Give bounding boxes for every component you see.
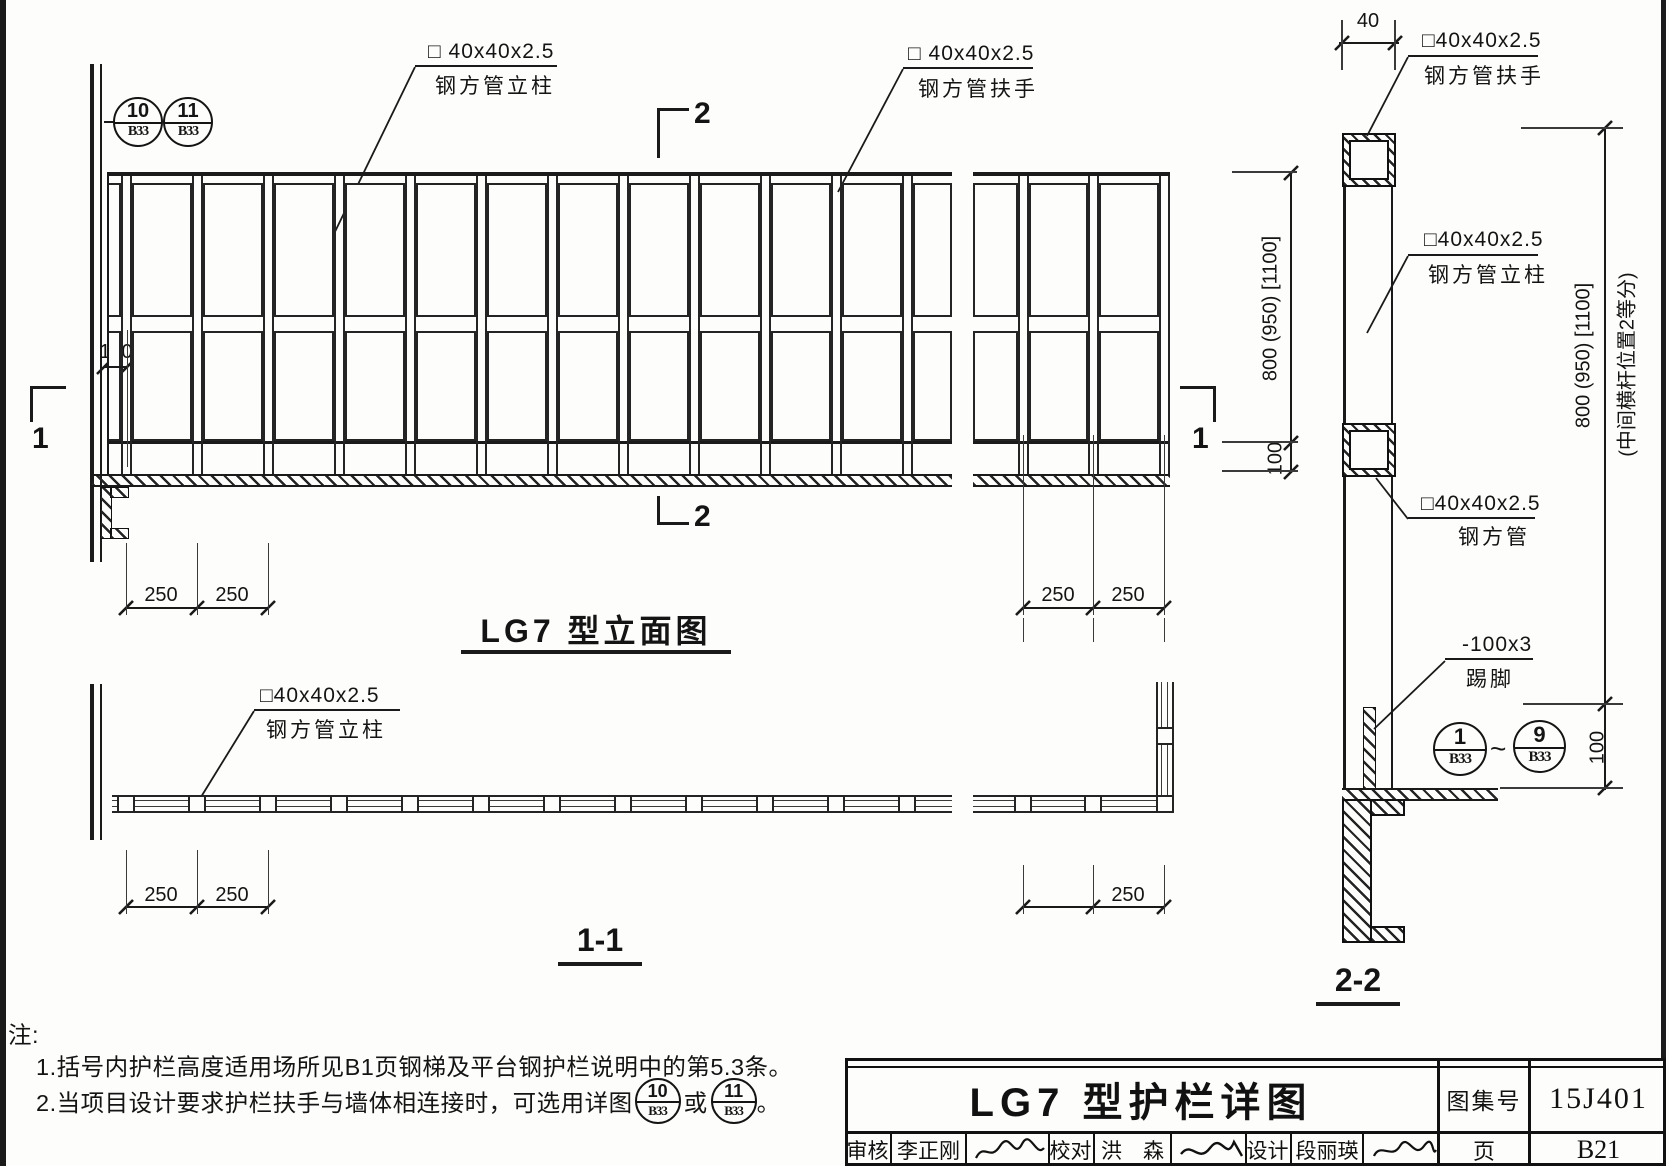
label-underline: [415, 65, 557, 67]
elevation-post: [1018, 176, 1029, 474]
extension-line: [1093, 865, 1095, 914]
extension-line: [1341, 20, 1343, 70]
label-elev-handrail-size: □ 40x40x2.5: [908, 42, 1034, 66]
detail-number: 11: [713, 1080, 755, 1103]
detail-page: B33: [165, 124, 211, 145]
dim-250: 250: [1028, 584, 1088, 607]
note-2: 2.当项目设计要求护栏扶手与墙体相连接时，可选用详图 10 B33 或 11 B…: [36, 1078, 781, 1124]
elevation-panel-lower: [842, 331, 902, 441]
label-sec-handrail-size: □40x40x2.5: [1422, 29, 1542, 53]
elevation-panel-lower: [487, 331, 547, 441]
section-mark-2-top: [657, 108, 660, 158]
dim-rail-height-section: 800 (950) [1100]: [1573, 246, 1596, 466]
detail-page: B33: [1515, 749, 1564, 771]
extension-line: [197, 543, 199, 615]
staff-name-proof: 洪 森: [1095, 1133, 1170, 1166]
dimension-line: [1023, 906, 1165, 908]
label-underline: [254, 709, 400, 711]
extension-line: [1023, 618, 1025, 642]
notes-heading: 注:: [8, 1016, 39, 1050]
elevation-panel-upper: [487, 183, 547, 317]
extension-line: [1093, 618, 1095, 642]
dim-40-tube: 40: [1346, 10, 1390, 33]
elevation-kick-line: [973, 441, 1170, 444]
section-channel-web: [1342, 799, 1372, 943]
dim-250: 250: [1098, 584, 1158, 607]
elevation-post: [1159, 176, 1170, 474]
label-sec-kick-size: -100x3: [1462, 633, 1532, 657]
dimension-line: [1290, 173, 1292, 473]
wall-line-elevation: [90, 64, 94, 562]
plan-post: [614, 795, 632, 813]
extension-line: [126, 543, 128, 615]
elevation-panel-lower: [1029, 331, 1088, 441]
extension-line: [1222, 470, 1298, 472]
section-mark-1-right: [1180, 386, 1216, 389]
dim-250: 250: [202, 584, 262, 607]
elevation-floor-channel: [110, 528, 129, 539]
elevation-post: [405, 176, 416, 474]
elevation-panel-lower: [132, 331, 192, 441]
label-plan-post-name: 钢方管立柱: [266, 714, 386, 744]
section-title: 2-2: [1310, 962, 1406, 999]
plan-title-underline: [558, 962, 642, 966]
extension-line: [1500, 787, 1623, 789]
sheet-border-right: [1661, 0, 1666, 1166]
elevation-panel-lower: [700, 331, 760, 441]
tilde: ~: [1490, 733, 1506, 765]
detail-bubble-11-B33: 11 B33: [163, 97, 213, 147]
section-post-line: [1343, 477, 1346, 788]
plan-post: [1014, 795, 1032, 813]
dimension-line: [1339, 42, 1399, 44]
elevation-panel-lower: [913, 331, 953, 441]
plan-post: [756, 795, 774, 813]
plan-post: [1156, 727, 1174, 745]
plan-post: [259, 795, 277, 813]
elevation-kick-line: [107, 441, 952, 444]
plan-post: [401, 795, 419, 813]
elevation-floor: [92, 474, 952, 487]
plan-title: 1-1: [552, 922, 648, 959]
elevation-post: [334, 176, 345, 474]
section-post-line: [1343, 187, 1346, 423]
detail-number: 1: [1435, 724, 1485, 751]
elevation-panel-lower: [274, 331, 334, 441]
elevation-panel-upper: [629, 183, 689, 317]
section-handrail-tube: [1342, 133, 1396, 187]
dim-250: 250: [202, 884, 262, 907]
dim-250: 250: [131, 884, 191, 907]
label-underline: [1408, 254, 1538, 256]
label-underline: [1445, 658, 1533, 660]
dimension-line: [1604, 128, 1606, 790]
elevation-panel-upper: [1099, 183, 1159, 317]
staff-name-check: 李正刚: [892, 1133, 965, 1166]
detail-bubble-10-B33-inline: 10 B33: [635, 1078, 681, 1124]
section-midrail-tube: [1342, 423, 1396, 477]
dim-rail-height-elev: 800 (950) [1100]: [1260, 199, 1283, 419]
elevation-panel-lower: [771, 331, 831, 441]
elevation-floor-channel: [110, 487, 129, 498]
section-mark-2-bottom: [657, 522, 689, 525]
plan-rail: [112, 795, 952, 813]
elevation-post: [831, 176, 842, 474]
elevation-panel-lower: [345, 331, 405, 441]
elevation-panel-lower: [107, 331, 121, 441]
elevation-panel-lower: [1099, 331, 1159, 441]
section-mark-1-left: [30, 386, 33, 422]
elevation-panel-upper: [913, 183, 953, 317]
detail-number: 10: [637, 1080, 679, 1103]
section-mark-1-label: 1: [32, 422, 49, 456]
note-2-text: 2.当项目设计要求护栏扶手与墙体相连接时，可选用详图: [36, 1084, 633, 1118]
section-channel-flange: [1370, 799, 1405, 816]
elevation-panel-lower: [973, 331, 1018, 441]
dim-kick-height-section: 100: [1587, 723, 1610, 773]
label-sec-post-name: 钢方管立柱: [1428, 259, 1548, 289]
elevation-panel-upper: [771, 183, 831, 317]
label-sec-post-size: □40x40x2.5: [1424, 228, 1544, 252]
wall-line-plan: [100, 684, 102, 840]
plan-post: [898, 795, 916, 813]
drawing-sheet: 10 B33 11 B33 □ 40x40x2.5 钢方管立柱 □ 40x40x…: [0, 0, 1669, 1166]
detail-bubble-10-B33: 10 B33: [113, 97, 163, 147]
label-underline: [1408, 517, 1535, 519]
plan-post: [1084, 795, 1102, 813]
section-mark-2-label: 2: [694, 500, 711, 534]
elevation-post: [547, 176, 558, 474]
elevation-panel-upper: [107, 183, 121, 317]
section-mark-1-label: 1: [1192, 422, 1209, 456]
label-plan-post-size: □40x40x2.5: [260, 684, 380, 708]
staff-role-design: 设计: [1245, 1133, 1290, 1166]
elevation-panel-upper: [203, 183, 263, 317]
section-post-line: [1391, 187, 1394, 423]
extension-line: [1521, 127, 1623, 129]
extension-line: [1394, 20, 1396, 70]
label-elev-post-size: □ 40x40x2.5: [428, 40, 554, 64]
detail-page: B33: [713, 1103, 755, 1122]
label-sec-midrail-name: 钢方管: [1458, 521, 1530, 551]
extension-line: [197, 850, 199, 914]
label-sec-midrail-size: □40x40x2.5: [1421, 492, 1541, 516]
label-sec-kick-name: 踢脚: [1466, 663, 1514, 693]
dim-rail-height-note: (中间横杆位置2等分): [1611, 245, 1640, 485]
elevation-panel-lower: [416, 331, 476, 441]
elevation-post: [618, 176, 629, 474]
detail-page: B33: [1435, 751, 1485, 774]
plan-rail-return: [1156, 682, 1174, 813]
section-mark-1-left: [30, 386, 66, 389]
elevation-panel-upper: [973, 183, 1018, 317]
wall-line-plan: [90, 684, 94, 840]
elevation-panel-upper: [416, 183, 476, 317]
elevation-post: [902, 176, 913, 474]
elevation-panel-upper: [700, 183, 760, 317]
extension-line: [1164, 435, 1166, 615]
section-post-line: [1391, 477, 1394, 788]
dimension-line: [104, 366, 128, 368]
elevation-panel-upper: [345, 183, 405, 317]
atlas-number: 15J401: [1531, 1066, 1666, 1131]
elevation-floor: [973, 474, 1170, 487]
detail-number: 9: [1515, 722, 1564, 749]
section-kick-plate: [1363, 707, 1376, 790]
section-mark-1-right: [1213, 386, 1216, 422]
page-number: B21: [1531, 1133, 1666, 1166]
elevation-post: [1088, 176, 1099, 474]
elevation-title-underline: [461, 650, 731, 654]
elevation-top-rail: [107, 172, 952, 176]
sheet-border-left: [0, 0, 6, 1166]
titleblock-title: LG7 型护栏详图: [845, 1066, 1437, 1131]
detail-page: B33: [115, 124, 161, 145]
elevation-panel-upper: [558, 183, 618, 317]
extension-line: [1164, 865, 1166, 914]
detail-number: 10: [115, 99, 161, 124]
extension-line: [268, 850, 270, 914]
note-2-end: 。: [757, 1084, 781, 1118]
title-block-cell-divider: [965, 1131, 967, 1166]
section-channel-flange: [1370, 926, 1405, 943]
elevation-panel-lower: [558, 331, 618, 441]
extension-line: [1222, 441, 1298, 443]
elevation-panel-upper: [1029, 183, 1088, 317]
section-title-underline: [1316, 1002, 1400, 1006]
elevation-post: [689, 176, 700, 474]
dimension-line: [1023, 607, 1165, 609]
elevation-panel-upper: [274, 183, 334, 317]
extension-line: [127, 330, 129, 467]
detail-number: 11: [165, 99, 211, 124]
page-label: 页: [1440, 1133, 1528, 1166]
title-block-cell-divider: [1170, 1131, 1172, 1166]
plan-post: [827, 795, 845, 813]
detail-bubble-1-B33: 1 B33: [1433, 722, 1487, 776]
dim-250: 250: [131, 584, 191, 607]
elevation-left-edge: [107, 172, 109, 474]
label-underline: [1408, 55, 1538, 57]
extension-line: [1164, 618, 1166, 642]
plan-post: [472, 795, 490, 813]
detail-bubble-11-B33-inline: 11 B33: [711, 1078, 757, 1124]
staff-role-proof: 校对: [1048, 1133, 1093, 1166]
extension-line: [1523, 703, 1623, 705]
label-underline: [903, 67, 1033, 69]
staff-role-check: 审核: [845, 1133, 890, 1166]
atlas-label: 图集号: [1440, 1066, 1528, 1131]
elevation-post: [476, 176, 487, 474]
label-elev-handrail-name: 钢方管扶手: [918, 73, 1038, 103]
staff-name-design: 段丽瑛: [1292, 1133, 1362, 1166]
label-elev-post-name: 钢方管立柱: [435, 70, 555, 100]
plan-post: [685, 795, 703, 813]
elevation-post: [760, 176, 771, 474]
detail-page: B33: [637, 1103, 679, 1122]
plan-post: [117, 795, 135, 813]
extension-line: [1093, 435, 1095, 615]
elevation-post: [192, 176, 203, 474]
extension-line: [1023, 865, 1025, 914]
section-mark-2-top: [657, 108, 689, 111]
extension-line: [126, 850, 128, 914]
plan-post: [543, 795, 561, 813]
elevation-panel-lower: [629, 331, 689, 441]
extension-line: [268, 543, 270, 615]
elevation-panel-upper: [132, 183, 192, 317]
section-mark-2-label: 2: [694, 97, 711, 131]
elevation-panel-lower: [203, 331, 263, 441]
section-mark-2-bottom: [657, 496, 660, 525]
label-sec-handrail-name: 钢方管扶手: [1424, 60, 1544, 90]
elevation-panel-upper: [842, 183, 902, 317]
elevation-title: LG7 型立面图: [465, 606, 727, 652]
plan-post: [330, 795, 348, 813]
elevation-post: [263, 176, 274, 474]
extension-line: [1023, 435, 1025, 615]
plan-post-corner: [1156, 795, 1174, 813]
extension-line: [1232, 171, 1297, 173]
note-1: 1.括号内护栏高度适用场所见B1页钢梯及平台钢护栏说明中的第5.3条。: [36, 1048, 793, 1082]
detail-bubble-9-B33: 9 B33: [1513, 720, 1566, 773]
elevation-top-rail: [973, 172, 1170, 176]
plan-post: [188, 795, 206, 813]
dim-250: 250: [1098, 884, 1158, 907]
note-2-or: 或: [684, 1084, 708, 1118]
title-block-cell-divider: [1362, 1131, 1364, 1166]
plan-rail: [973, 795, 1174, 813]
